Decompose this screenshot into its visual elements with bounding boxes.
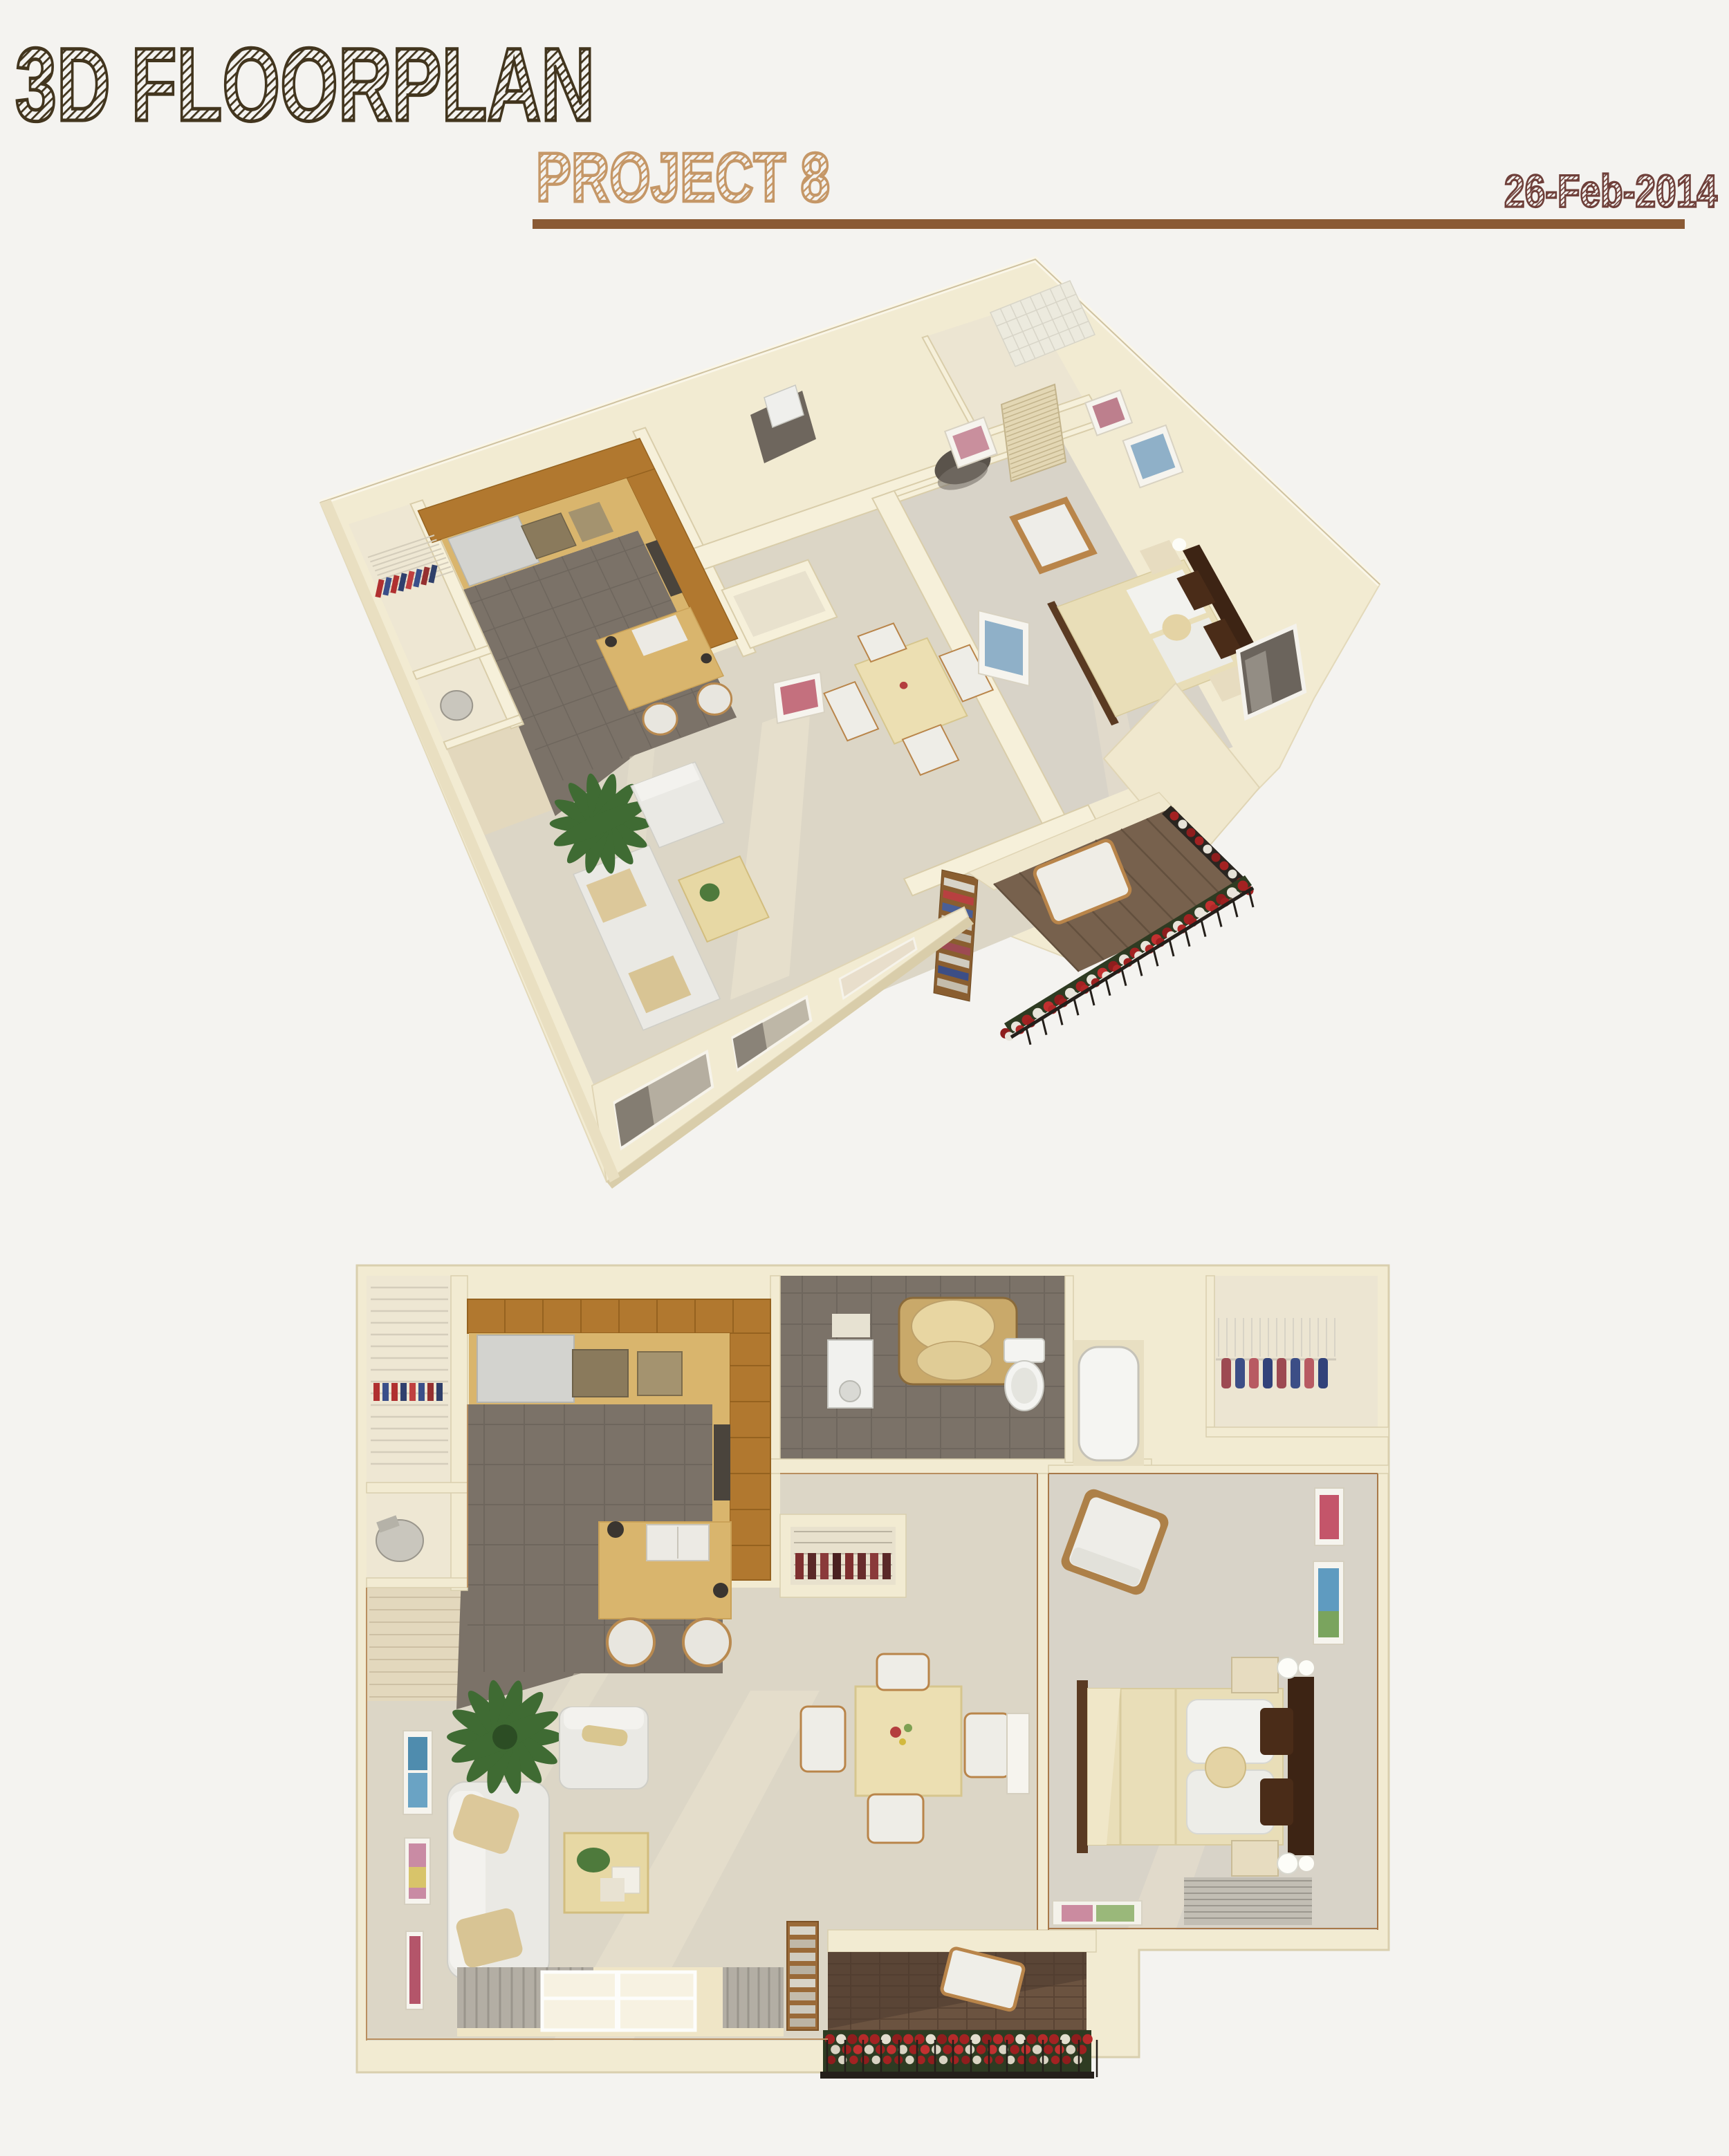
- svg-text:3D FLOORPLAN: 3D FLOORPLAN: [15, 26, 595, 142]
- svg-text:26-Feb-2014: 26-Feb-2014: [1504, 165, 1717, 216]
- svg-text:PROJECT 8: PROJECT 8: [536, 139, 830, 216]
